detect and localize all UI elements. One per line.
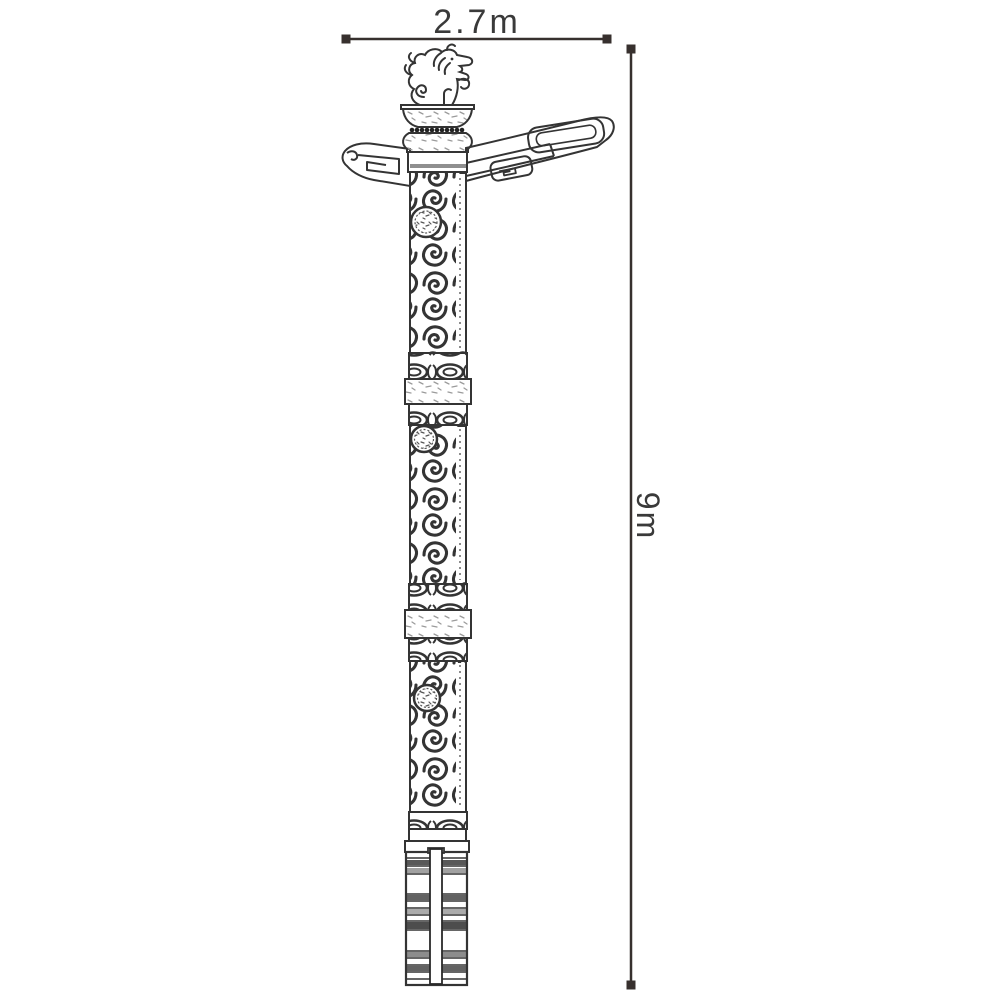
width-dimension-end-left xyxy=(342,35,351,44)
pole-shaft xyxy=(405,172,471,852)
shaft-band-1 xyxy=(409,353,467,379)
shaft-band-4 xyxy=(409,638,467,661)
bowl-capital xyxy=(401,105,474,172)
width-dimension-label: 2.7m xyxy=(433,3,521,41)
height-dimension-end-bottom xyxy=(627,981,636,990)
cloud-wing-right xyxy=(466,117,614,181)
shaft-band-3 xyxy=(409,584,467,610)
medallion-middle xyxy=(411,426,437,452)
height-dimension-end-top xyxy=(627,45,636,54)
pole-base xyxy=(406,848,467,985)
medallion-upper xyxy=(411,207,441,237)
shaft-seam xyxy=(456,174,465,810)
dimension-width: 2.7m xyxy=(342,3,612,44)
height-dimension-label: 9m xyxy=(630,492,666,540)
cloud-wing-left xyxy=(343,143,410,186)
shaft-band-2 xyxy=(409,404,467,425)
bead-row xyxy=(410,128,465,133)
drawing-canvas: 2.7m 9m xyxy=(0,0,1000,1000)
dragon-beast-finial xyxy=(405,45,472,105)
totem-column-technical-drawing: 2.7m 9m xyxy=(0,0,1000,1000)
shaft-light-band-1 xyxy=(405,379,471,404)
shaft-collar-upper xyxy=(409,829,466,841)
dimension-height: 9m xyxy=(627,45,667,990)
shaft-band-5 xyxy=(409,812,467,829)
width-dimension-end-right xyxy=(603,35,612,44)
medallion-lower xyxy=(414,685,440,711)
base-center-strip xyxy=(428,848,444,984)
shaft-light-band-2 xyxy=(405,610,471,638)
pole-figure xyxy=(343,45,614,985)
